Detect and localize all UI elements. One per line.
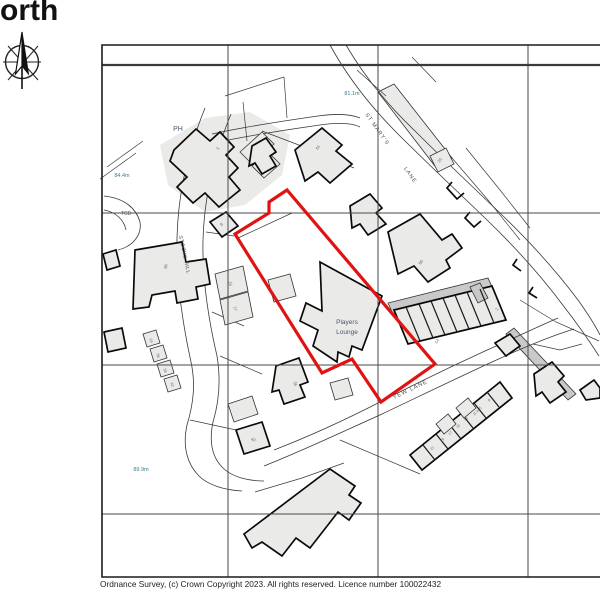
map-label: LANE	[402, 166, 417, 184]
map-label: Players	[336, 319, 358, 326]
screenshot-root: orth PH184.4mTCBSTOCKS HILLST MARY'SLANE…	[0, 0, 600, 600]
map-label: ST MARY'S	[363, 112, 390, 147]
map-label: 89.9m	[133, 467, 149, 473]
map-canvas: PH184.4mTCBSTOCKS HILLST MARY'SLANE81.1m…	[0, 0, 600, 600]
map-label: 84.4m	[114, 173, 130, 179]
map-label: PH	[173, 126, 183, 133]
map-label: 81.1m	[344, 91, 360, 97]
map-label: Lounge	[336, 329, 358, 336]
map-label: TCB	[121, 211, 132, 217]
attribution-text: Ordnance Survey, (c) Crown Copyright 202…	[100, 579, 441, 589]
